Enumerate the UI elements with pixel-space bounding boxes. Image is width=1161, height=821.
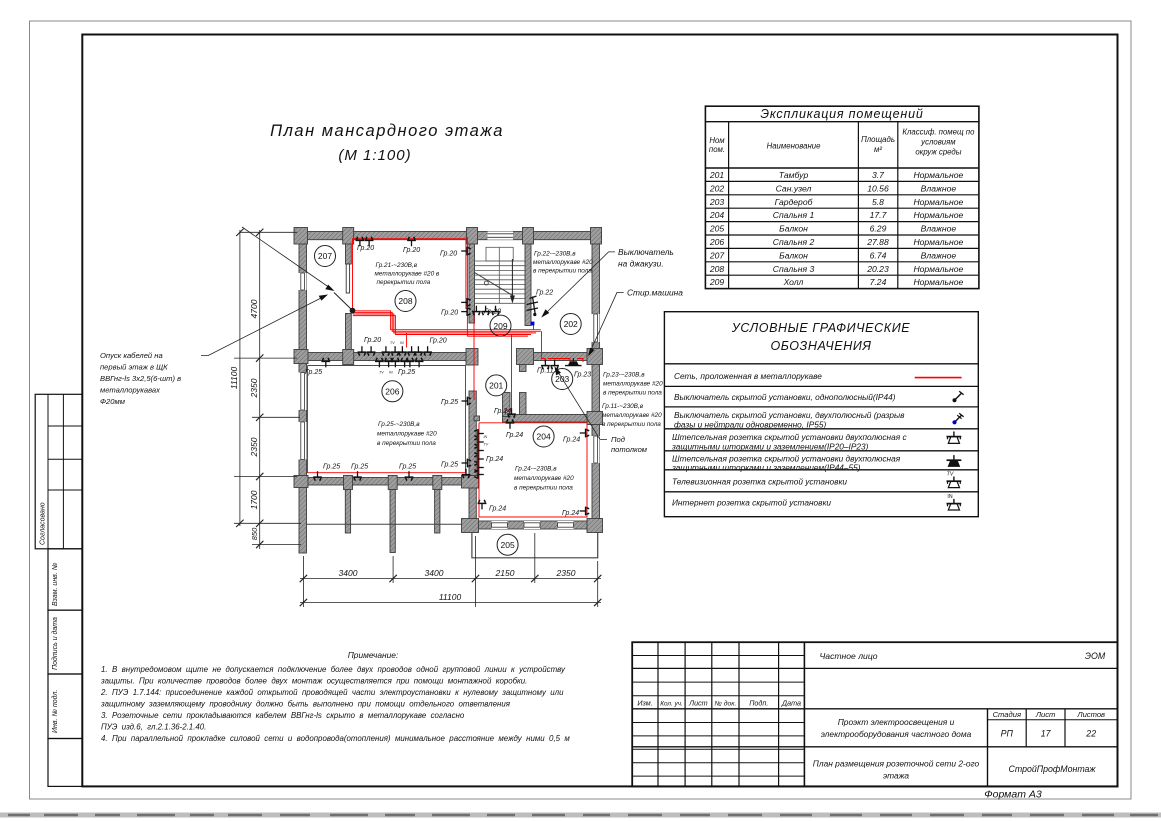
svg-text:Гр.24: Гр.24 — [506, 432, 523, 439]
svg-text:Нормальное: Нормальное — [913, 170, 963, 180]
svg-text:электрооборудования частного: электрооборудования частного дома — [821, 729, 972, 739]
svg-text:Балкон: Балкон — [779, 250, 808, 260]
svg-text:металлорукаве #20: металлорукаве #20 — [377, 431, 437, 438]
svg-text:IN: IN — [484, 435, 488, 439]
svg-text:в перекрытии пола: в перекрытии пола — [377, 440, 436, 447]
svg-text:1700: 1700 — [249, 490, 259, 509]
svg-text:208: 208 — [709, 264, 725, 274]
svg-text:пом.: пом. — [709, 145, 725, 154]
svg-text:Выключатель: Выключатель — [618, 247, 674, 257]
svg-text:Гр.25-~230В,в: Гр.25-~230В,в — [378, 421, 420, 428]
svg-text:Гр.23: Гр.23 — [574, 372, 591, 379]
svg-text:206: 206 — [385, 387, 399, 397]
svg-text:Спальня 2: Спальня 2 — [773, 237, 815, 247]
svg-text:Лист: Лист — [688, 698, 708, 707]
svg-text:Гр.25: Гр.25 — [305, 369, 322, 376]
svg-text:этажа: этажа — [883, 771, 909, 781]
svg-text:3400: 3400 — [339, 568, 358, 578]
svg-text:206: 206 — [709, 237, 725, 247]
svg-text:Сеть, проложенная в металло: Сеть, проложенная в металлорукаве — [674, 371, 822, 381]
svg-text:защиты. При количестве пров: защиты. При количестве проводов более дв… — [100, 677, 527, 686]
svg-text:Спальня 1: Спальня 1 — [773, 210, 815, 220]
svg-text:Гр.24-~230В,в: Гр.24-~230В,в — [515, 466, 557, 473]
svg-text:Балкон: Балкон — [779, 224, 808, 234]
svg-text:209: 209 — [709, 277, 725, 287]
svg-text:Гардероб: Гардероб — [775, 197, 814, 207]
svg-text:Гр.22-~230В,в: Гр.22-~230В,в — [534, 251, 576, 258]
svg-text:1. В внутредомовом щите не: 1. В внутредомовом щите не допускается п… — [101, 665, 566, 674]
svg-text:металлорукаве #20 в: металлорукаве #20 в — [375, 271, 440, 278]
svg-text:Гр.24: Гр.24 — [563, 437, 580, 444]
svg-text:Выключатель скрытой установ: Выключатель скрытой установки, двухполюс… — [674, 410, 905, 420]
svg-text:Гр.23-~230В,в: Гр.23-~230В,в — [603, 372, 645, 379]
svg-text:Нормальное: Нормальное — [913, 277, 963, 287]
svg-text:Гр.11: Гр.11 — [537, 368, 554, 375]
svg-text:IN: IN — [389, 371, 393, 375]
svg-text:7.24: 7.24 — [870, 277, 887, 287]
svg-text:Примечание:: Примечание: — [348, 650, 399, 660]
svg-text:План мансардного этажа: План мансардного этажа — [270, 122, 504, 140]
svg-text:Взам. инв. №: Взам. инв. № — [52, 562, 59, 606]
svg-text:Дата: Дата — [781, 698, 801, 707]
svg-text:207: 207 — [318, 251, 332, 261]
svg-text:22: 22 — [1085, 729, 1096, 739]
svg-text:Гр.25: Гр.25 — [441, 399, 458, 406]
svg-text:Гр.22: Гр.22 — [536, 290, 553, 297]
svg-text:м²: м² — [874, 145, 882, 154]
svg-text:Стир.машина: Стир.машина — [627, 288, 683, 298]
svg-text:2350: 2350 — [249, 378, 259, 398]
svg-text:Гр.24: Гр.24 — [494, 408, 511, 415]
svg-text:201: 201 — [709, 170, 725, 180]
svg-text:27.88: 27.88 — [866, 237, 889, 247]
svg-text:205: 205 — [709, 224, 725, 234]
svg-text:202: 202 — [564, 319, 578, 329]
svg-text:Телевизионная розетка скрыто: Телевизионная розетка скрытой установки — [672, 477, 847, 487]
svg-text:Нормальное: Нормальное — [913, 210, 963, 220]
svg-text:TV: TV — [947, 472, 954, 478]
svg-text:в перекрытии пола: в перекрытии пола — [602, 421, 661, 428]
svg-text:Холл: Холл — [783, 277, 804, 287]
svg-text:Гр.20: Гр.20 — [440, 251, 457, 258]
svg-text:ПУЭ изд.6, гл.2.1.36-2.1.40.: ПУЭ изд.6, гл.2.1.36-2.1.40. — [101, 723, 206, 732]
svg-text:Гр.20: Гр.20 — [357, 245, 374, 252]
svg-text:Гр.20: Гр.20 — [441, 310, 458, 317]
svg-text:Под: Под — [611, 435, 625, 444]
svg-text:СтройПрофМонтаж: СтройПрофМонтаж — [1008, 764, 1096, 774]
svg-text:защитному заземляющему прово: защитному заземляющему проводнику должно… — [100, 700, 511, 709]
svg-text:Экспликация помещений: Экспликация помещений — [760, 107, 923, 121]
svg-text:перекрытии пола: перекрытии пола — [377, 279, 431, 286]
svg-text:Гр.20: Гр.20 — [484, 309, 501, 316]
svg-text:Гр.25: Гр.25 — [441, 462, 458, 469]
svg-text:4700: 4700 — [249, 299, 259, 318]
svg-text:Гр.20: Гр.20 — [430, 338, 447, 345]
svg-text:850: 850 — [250, 527, 259, 540]
svg-text:17: 17 — [1041, 729, 1052, 739]
svg-text:Гр.24: Гр.24 — [489, 506, 506, 513]
svg-text:Подп.: Подп. — [749, 698, 768, 707]
svg-text:Гр.25: Гр.25 — [323, 464, 340, 471]
svg-text:ОБОЗНАЧЕНИЯ: ОБОЗНАЧЕНИЯ — [770, 339, 871, 353]
svg-text:209: 209 — [493, 321, 507, 331]
svg-text:207: 207 — [709, 250, 726, 260]
svg-text:TV: TV — [484, 443, 489, 447]
svg-text:3.7: 3.7 — [872, 170, 885, 180]
svg-text:в перекрытии пола: в перекрытии пола — [603, 390, 662, 397]
svg-text:Влажное: Влажное — [921, 250, 957, 260]
svg-text:Инв. № подл.: Инв. № подл. — [51, 690, 59, 733]
svg-text:Кол. уч.: Кол. уч. — [660, 700, 683, 707]
svg-text:Классиф. помещ по: Классиф. помещ по — [902, 128, 975, 137]
svg-text:Ном: Ном — [709, 136, 725, 145]
svg-text:Формат А3: Формат А3 — [984, 789, 1042, 801]
svg-text:TV: TV — [379, 371, 384, 375]
svg-text:Нормальное: Нормальное — [913, 197, 963, 207]
svg-text:на джакузи.: на джакузи. — [618, 259, 664, 269]
svg-text:10.56: 10.56 — [867, 183, 889, 193]
svg-text:Сан.узел: Сан.узел — [776, 183, 812, 193]
svg-text:Гр.20: Гр.20 — [364, 337, 381, 344]
svg-text:204: 204 — [537, 432, 551, 442]
svg-text:фазы и нейтрали одновременн: фазы и нейтрали одновременно, IP55) — [674, 420, 826, 430]
svg-text:Согласовано: Согласовано — [40, 502, 47, 545]
svg-text:металлорукавах: металлорукавах — [100, 386, 161, 395]
svg-text:Гр.25: Гр.25 — [399, 464, 416, 471]
svg-text:в перекрытии пола: в перекрытии пола — [533, 268, 592, 275]
svg-text:6.74: 6.74 — [870, 250, 887, 260]
svg-text:Штепсельная розетка скрытой: Штепсельная розетка скрытой установки дв… — [672, 432, 907, 442]
svg-text:Листов: Листов — [1076, 710, 1105, 719]
svg-text:Спальня 3: Спальня 3 — [773, 264, 815, 274]
svg-text:Гр.21-~230В,в: Гр.21-~230В,в — [376, 262, 418, 269]
svg-text:Лист: Лист — [1035, 710, 1056, 719]
svg-text:Площадь: Площадь — [861, 135, 895, 144]
svg-text:РП: РП — [1001, 729, 1014, 739]
svg-text:металлорукаве #20: металлорукаве #20 — [514, 475, 574, 482]
svg-text:План размещения розеточной сет: План размещения розеточной сети 2-ого — [813, 759, 980, 769]
svg-text:первый этаж в ЩК: первый этаж в ЩК — [100, 363, 168, 372]
svg-text:202: 202 — [709, 183, 725, 193]
svg-text:Ф20мм: Ф20мм — [100, 397, 126, 406]
svg-text:2150: 2150 — [495, 568, 515, 578]
svg-text:11100: 11100 — [439, 592, 462, 602]
svg-text:Подпись и дата: Подпись и дата — [51, 617, 59, 670]
svg-text:5.8: 5.8 — [872, 197, 884, 207]
svg-text:11100: 11100 — [229, 367, 239, 390]
svg-text:Стадия: Стадия — [993, 710, 1021, 719]
svg-text:Интернет розетка скрытой ус: Интернет розетка скрытой установки — [672, 498, 831, 508]
svg-text:потолком: потолком — [611, 445, 648, 454]
svg-text:Влажное: Влажное — [921, 224, 957, 234]
svg-text:4. При параллельной проклад: 4. При параллельной прокладке силовой се… — [101, 734, 570, 743]
svg-text:УСЛОВНЫЕ ГРАФИЧЕСКИЕ: УСЛОВНЫЕ ГРАФИЧЕСКИЕ — [731, 321, 910, 335]
svg-text:17.7: 17.7 — [870, 210, 888, 220]
svg-text:в перекрытии пола: в перекрытии пола — [514, 485, 573, 492]
svg-text:IN: IN — [947, 494, 952, 500]
svg-text:2350: 2350 — [249, 437, 259, 457]
svg-text:Проэкт электроосвещения и: Проэкт электроосвещения и — [838, 717, 955, 727]
svg-text:204: 204 — [709, 210, 725, 220]
svg-text:Гр.20: Гр.20 — [403, 247, 420, 254]
svg-text:ВВГнг-ls 3x2,5(6-шт) в: ВВГнг-ls 3x2,5(6-шт) в — [100, 374, 181, 383]
svg-text:203: 203 — [709, 197, 725, 207]
svg-text:3. Розеточные сети проклады: 3. Розеточные сети прокладываются кабеле… — [101, 711, 465, 720]
svg-text:6.29: 6.29 — [870, 224, 887, 234]
svg-text:Нормальное: Нормальное — [913, 237, 963, 247]
svg-text:2. ПУЭ 1.7.144: присоединени: 2. ПУЭ 1.7.144: присоединение каждой отк… — [100, 688, 564, 697]
svg-text:Гр.24: Гр.24 — [486, 456, 503, 463]
svg-text:Гр.25: Гр.25 — [398, 369, 415, 376]
svg-text:ЭОМ: ЭОМ — [1085, 651, 1106, 661]
svg-text:201: 201 — [489, 381, 503, 391]
svg-text:условиям: условиям — [920, 138, 956, 147]
svg-text:металлорукаве #20: металлорукаве #20 — [602, 412, 662, 419]
svg-text:Опуск кабелей на: Опуск кабелей на — [100, 351, 163, 360]
svg-text:Тамбур: Тамбур — [779, 170, 809, 180]
svg-text:№ док.: № док. — [714, 699, 736, 707]
svg-text:Частное лицо: Частное лицо — [820, 651, 878, 661]
svg-text:Гр.24: Гр.24 — [562, 510, 579, 517]
svg-text:металлорукаве #20: металлорукаве #20 — [603, 381, 663, 388]
svg-text:окруж среды: окруж среды — [915, 148, 961, 157]
svg-text:205: 205 — [501, 540, 515, 550]
svg-text:2350: 2350 — [556, 568, 576, 578]
svg-text:IN: IN — [400, 341, 404, 345]
svg-text:защитными шторками и заземл: защитными шторками и заземлением(IP44–55… — [671, 463, 861, 473]
svg-text:Гр.25: Гр.25 — [351, 464, 368, 471]
svg-text:3400: 3400 — [425, 568, 444, 578]
svg-text:TV: TV — [390, 341, 395, 345]
svg-text:металлорукаве #20: металлорукаве #20 — [533, 259, 593, 266]
svg-text:Гр.11-~230В,в: Гр.11-~230В,в — [602, 403, 644, 410]
svg-text:Влажное: Влажное — [921, 183, 957, 193]
svg-text:защитными шторками и заземл: защитными шторками и заземлением(IP20–IP… — [671, 442, 869, 452]
svg-text:Наименование: Наименование — [767, 142, 821, 151]
svg-text:Изм.: Изм. — [637, 698, 652, 707]
svg-text:20.23: 20.23 — [866, 264, 889, 274]
svg-text:208: 208 — [398, 296, 412, 306]
svg-text:(М 1:100): (М 1:100) — [338, 147, 411, 164]
svg-text:Выключатель скрытой установк: Выключатель скрытой установки, однополюс… — [674, 392, 896, 402]
svg-text:Нормальное: Нормальное — [913, 264, 963, 274]
